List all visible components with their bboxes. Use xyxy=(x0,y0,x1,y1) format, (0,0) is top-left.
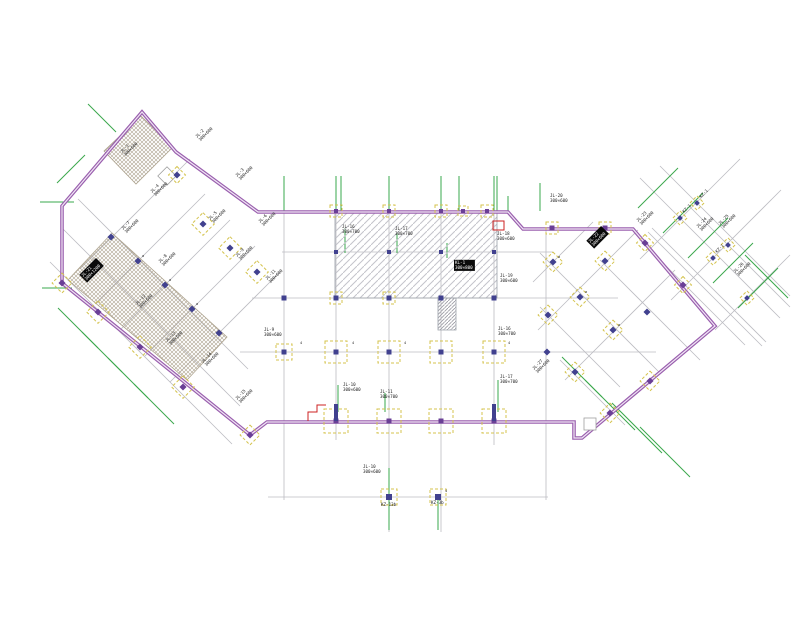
grid-line xyxy=(640,178,780,318)
column-tag: 4 xyxy=(508,341,510,345)
column-marker xyxy=(576,293,583,300)
beam-label: JL-23300×600 xyxy=(635,206,655,226)
beam-label: JL-27300×600 xyxy=(531,354,551,374)
beam-label-text: 300×700 xyxy=(498,331,516,336)
beam-label: JL-10300×600 xyxy=(343,382,361,392)
axis-line-green xyxy=(134,384,174,424)
beam-label-text: 300×700 xyxy=(395,231,413,236)
beam-label-text: 300×600 xyxy=(264,332,282,337)
column-marker xyxy=(485,209,489,213)
column-marker xyxy=(439,419,444,424)
column-marker xyxy=(334,250,338,254)
misc-openings-layer xyxy=(158,167,596,430)
column-tag: a xyxy=(618,323,620,327)
hatched-slab-region xyxy=(438,298,456,330)
column-tag: 4 xyxy=(352,341,354,345)
column-marker xyxy=(387,209,391,213)
wall-opening xyxy=(158,167,176,185)
column-tag: 4 xyxy=(445,489,447,493)
beam-label-text: KZ-1 xyxy=(698,188,709,199)
beam-label: JL-5300×600 xyxy=(207,204,227,224)
beam-label: KZ-1 xyxy=(698,188,709,199)
column-marker xyxy=(609,326,616,333)
column-marker xyxy=(334,209,338,213)
column-marker xyxy=(439,350,444,355)
column-tag: a xyxy=(142,254,144,258)
beam-label-text: KZ-13b xyxy=(381,502,397,507)
axis-line-green xyxy=(88,104,116,132)
grid-line xyxy=(640,159,740,259)
grid-line xyxy=(652,228,766,342)
column-marker xyxy=(387,350,392,355)
column-marker xyxy=(492,350,497,355)
grid-line xyxy=(660,166,790,296)
beam-label: JL-11300×700 xyxy=(380,389,398,399)
column-marker xyxy=(571,368,578,375)
beam-label: KL-1300×800 xyxy=(454,260,475,271)
grid-line xyxy=(600,260,700,360)
column-marker xyxy=(543,348,550,355)
column-marker xyxy=(387,419,392,424)
beam-label: JL-9300×600 xyxy=(264,327,282,337)
beam-label-text: 300×600 xyxy=(497,236,515,241)
beam-label-text: 300×600 xyxy=(550,198,568,203)
hatched-slab-region xyxy=(335,213,497,298)
beam-label: JL-7300×600 xyxy=(120,214,140,234)
column-marker xyxy=(439,296,444,301)
beam-label: JL-11300×600 xyxy=(264,264,284,284)
wall-opening xyxy=(584,418,596,430)
beam-label-text: 300×800 xyxy=(455,265,473,270)
beam-label: JL-10300×600 xyxy=(363,464,381,474)
column-marker xyxy=(334,350,339,355)
column-tag: a xyxy=(585,290,587,294)
column-marker xyxy=(199,220,206,227)
column-marker xyxy=(439,209,443,213)
axis-line-green xyxy=(57,155,85,183)
column-marker xyxy=(226,244,233,251)
grid-line xyxy=(560,360,625,425)
axis-line-green xyxy=(745,255,788,298)
beam-label-text: 300×600 xyxy=(363,469,381,474)
column-marker xyxy=(282,296,287,301)
column-marker xyxy=(439,250,443,254)
column-tag: a xyxy=(558,255,560,259)
beam-label: JL-2300×600 xyxy=(194,122,214,142)
beam-label: JL-18300×600 xyxy=(497,231,515,241)
grid-line xyxy=(648,232,762,346)
beam-label-text: KZ-3b xyxy=(431,500,444,505)
column-tag: 4 xyxy=(300,341,302,345)
beam-label: JL-3300×600 xyxy=(234,161,254,181)
column-marker xyxy=(387,296,392,301)
red-step-mark xyxy=(308,405,326,421)
column-marker xyxy=(253,268,260,275)
beam-label: JL-8300×600 xyxy=(157,247,177,267)
grid-line xyxy=(715,255,790,330)
beam-label: JL-17300×700 xyxy=(500,374,518,384)
axis-line-green xyxy=(612,403,662,453)
column-tag: a xyxy=(196,302,198,306)
beam-label: JL-20300×600 xyxy=(550,193,568,203)
beam-label-text: 300×600 xyxy=(500,278,518,283)
beam-label: KZ-3b xyxy=(431,500,444,505)
column-marker xyxy=(386,494,392,500)
wall-pilaster xyxy=(334,404,338,421)
column-marker xyxy=(334,296,339,301)
column-tag: 4 xyxy=(404,341,406,345)
beam-label-text: 300×700 xyxy=(342,229,360,234)
cad-floor-plan-viewport[interactable]: JL-2300×600JL-3300×600JL-1300×600JL-4300… xyxy=(0,0,800,640)
beam-label: JL-25300×600 xyxy=(717,209,737,229)
beam-label-text: 300×700 xyxy=(500,379,518,384)
column-marker xyxy=(282,350,287,355)
axis-line-green xyxy=(638,168,678,208)
beam-label-text: 300×700 xyxy=(380,394,398,399)
column-marker xyxy=(601,257,608,264)
grid-line xyxy=(540,253,660,373)
axis-line-green xyxy=(738,268,778,308)
wall-pilasters-layer xyxy=(334,404,496,421)
beam-label: JL-16300×700 xyxy=(498,326,516,336)
beam-label: KZ-13b xyxy=(381,502,397,507)
column-marker xyxy=(387,250,391,254)
column-tag: a xyxy=(169,278,171,282)
column-marker xyxy=(461,209,465,213)
column-marker xyxy=(492,296,497,301)
axis-line-green xyxy=(640,427,690,477)
floor-plan-drawing[interactable]: JL-2300×600JL-3300×600JL-1300×600JL-4300… xyxy=(0,0,800,640)
beam-label: JL-19300×600 xyxy=(500,273,518,283)
column-marker xyxy=(492,250,496,254)
column-marker xyxy=(550,226,555,231)
beam-label-text: 300×600 xyxy=(343,387,361,392)
wall-pilaster xyxy=(492,404,496,421)
grid-line xyxy=(538,230,638,330)
beam-label: JL-15300×600 xyxy=(234,384,254,404)
